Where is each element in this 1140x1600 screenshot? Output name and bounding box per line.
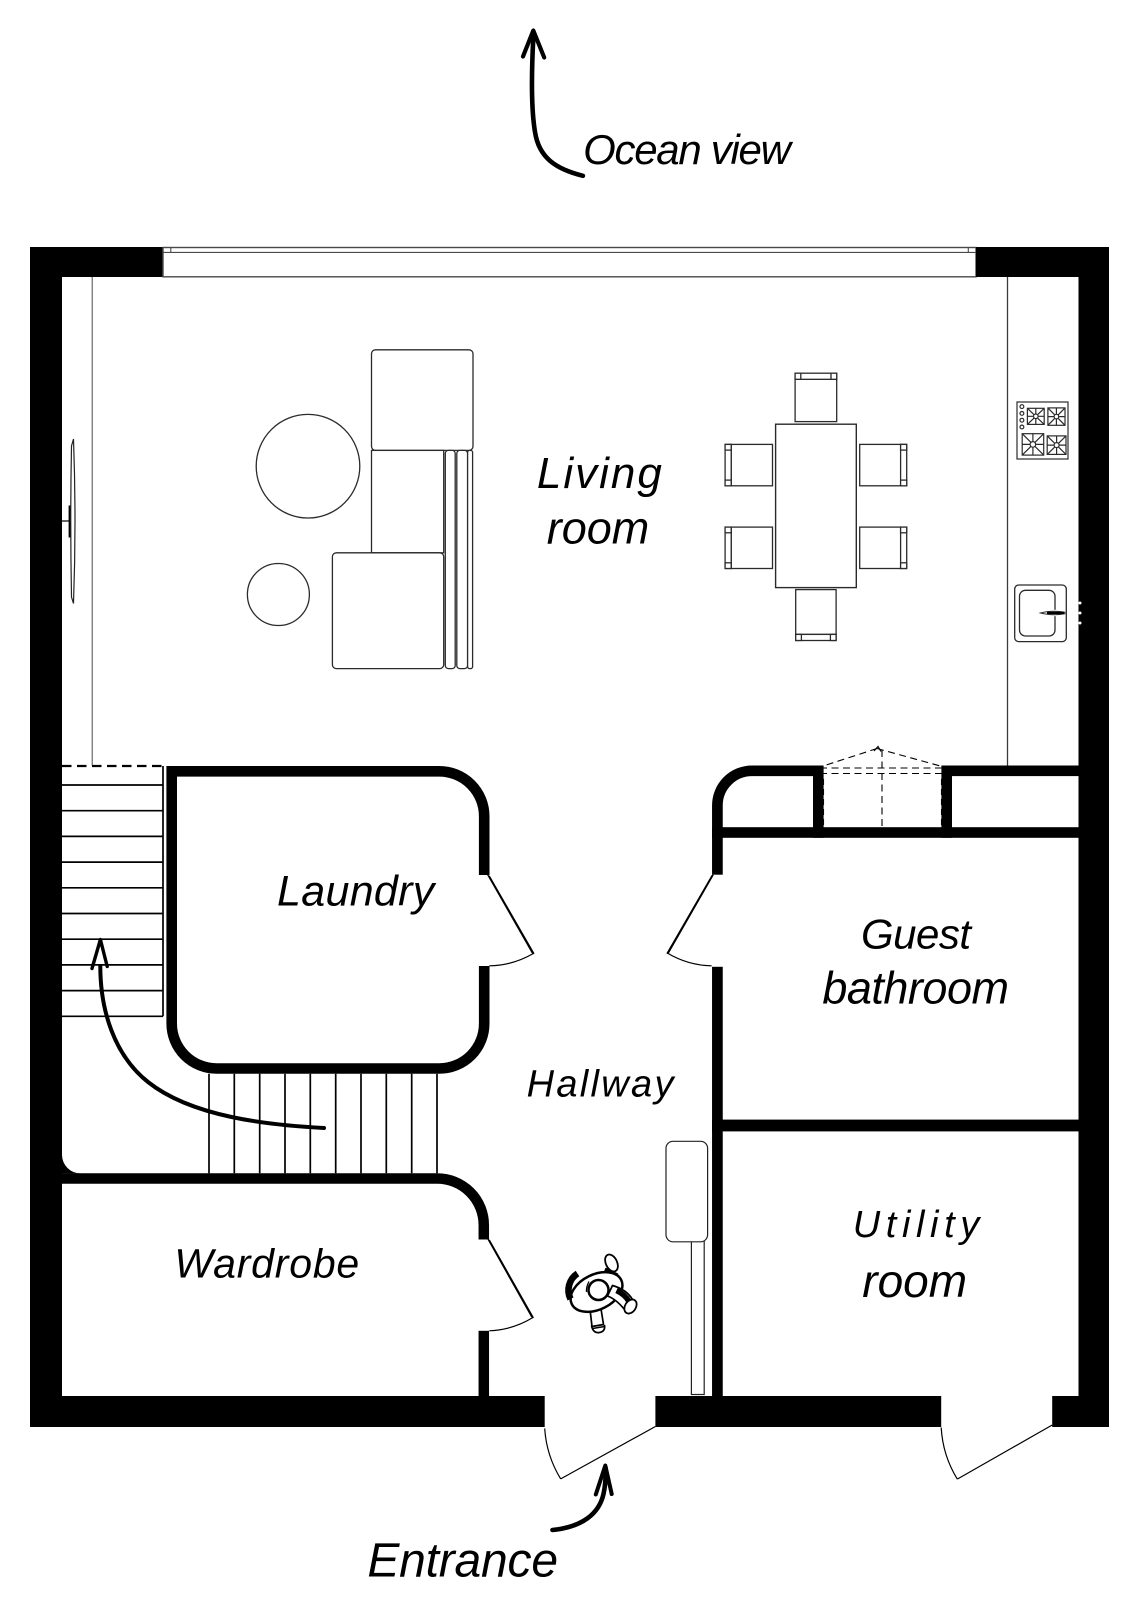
- svg-text:Hallway: Hallway: [527, 1063, 676, 1105]
- svg-text:room: room: [547, 503, 650, 554]
- svg-text:Living: Living: [537, 449, 664, 498]
- svg-text:bathroom: bathroom: [822, 963, 1008, 1014]
- svg-text:Laundry: Laundry: [277, 868, 437, 916]
- svg-text:Wardrobe: Wardrobe: [174, 1241, 360, 1287]
- svg-text:Ocean view: Ocean view: [583, 126, 793, 173]
- svg-text:room: room: [862, 1255, 967, 1307]
- svg-text:Entrance: Entrance: [367, 1535, 558, 1588]
- svg-text:Utility: Utility: [853, 1204, 985, 1246]
- svg-text:Guest: Guest: [861, 911, 973, 958]
